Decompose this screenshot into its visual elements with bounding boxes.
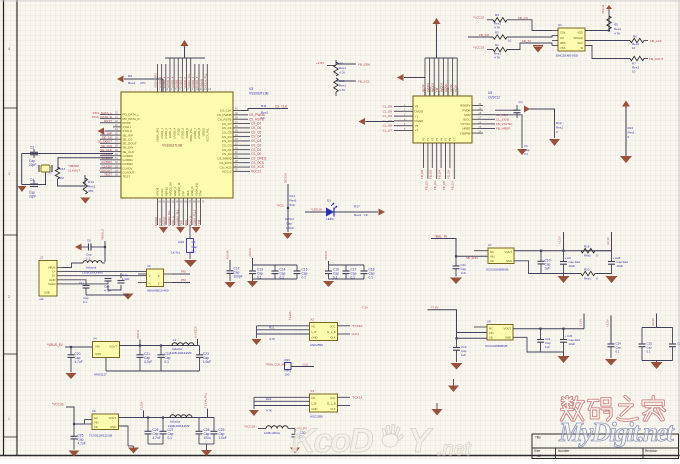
svg-text:47K: 47K [88,189,94,193]
svg-text:SCK: SCK [577,41,583,45]
svg-text:10uF: 10uF [569,264,576,268]
svg-text:R14: R14 [88,180,94,184]
svg-text:GND: GND [95,352,101,356]
svg-text:UVDD_4: UVDD_4 [172,127,176,138]
svg-text:0.1: 0.1 [257,276,262,280]
svg-text:*VCC33: *VCC33 [473,16,484,20]
svg-text:R18: R18 [178,240,184,244]
svg-text:DGND: DGND [415,119,425,123]
svg-text:Y1: Y1 [415,114,419,118]
svg-text:120B,100UH/MZ: 120B,100UH/MZ [168,424,190,428]
svg-text:R12: R12 [556,121,562,125]
svg-text:GND: GND [506,259,512,263]
svg-text:CL_D8: CL_D8 [383,105,393,109]
svg-text:R20: R20 [584,268,590,272]
svg-text:ASC2556: ASC2556 [310,415,323,419]
svg-text:ENC28J60-I/SS: ENC28J60-I/SS [556,54,578,58]
svg-text:SB_223V: SB_223V [466,256,478,260]
svg-text:HREF: HREF [462,127,470,131]
svg-text:VDDIO: VDDIO [201,128,205,137]
svg-text:Number: Number [558,449,570,453]
svg-text:VCC3I: VCC3I [136,330,140,339]
svg-text:2.2: 2.2 [86,257,91,261]
svg-text:VIN: VIN [489,331,494,335]
svg-text:CVDD_2: CVDD_2 [164,127,168,138]
svg-text:LED0: LED0 [326,217,334,221]
svg-text:*VCC33: *VCC33 [473,46,484,50]
svg-text:1.0uF: 1.0uF [203,360,211,364]
svg-text:C11: C11 [79,281,84,285]
svg-text:A3.3V: A3.3V [606,237,610,245]
svg-text:YSYNC: YSYNC [460,122,471,126]
svg-text:(C): (C) [519,100,523,104]
svg-text:Y8: Y8 [415,105,419,109]
svg-text:TL33A: TL33A [140,401,144,410]
svg-text:Res1: Res1 [354,213,362,217]
svg-text:DVDD: DVDD [415,110,424,114]
svg-text:OV9712: OV9712 [488,96,500,100]
svg-text:1uF: 1uF [461,271,466,275]
svg-text:10: 10 [632,70,636,74]
svg-text:WPb: WPb [560,41,566,45]
svg-text:NC: NC [312,396,316,400]
svg-text:GND: GND [312,336,318,340]
svg-text:0.1: 0.1 [192,250,197,254]
svg-text:+1.2V: +1.2V [606,319,610,327]
svg-text:Y6: Y6 [448,137,452,141]
svg-text:0.1: 0.1 [83,300,87,304]
svg-text:*TCX3A: *TCX3A [352,324,363,328]
svg-text:CLK: CLK [330,336,335,340]
svg-text:L_B: L_B [312,402,317,406]
svg-text:CLKOUT: CLKOUT [68,169,80,173]
svg-text:UVDD_1: UVDD_1 [160,127,164,138]
svg-text:CL_SIOD: CL_SIOD [496,117,510,121]
svg-text:U5: U5 [488,91,492,95]
svg-text:SI: SI [580,46,583,50]
svg-text:4.7K: 4.7K [614,32,620,36]
svg-text:TPM: TPM [199,190,203,196]
svg-text:-7.2V: -7.2V [361,306,368,310]
svg-text:VCC12: VCC12 [251,170,262,174]
svg-text:R8: R8 [339,62,343,66]
svg-text:GND_A: GND_A [173,187,177,196]
svg-text:4.7uF: 4.7uF [78,442,86,446]
svg-text:VCC12: VCC12 [222,170,232,174]
svg-text:Res1: Res1 [339,84,346,88]
svg-text:FB_DOUT: FB_DOUT [649,57,664,61]
svg-text:U6: U6 [92,409,96,413]
svg-text:D1: D1 [327,199,331,203]
svg-text:NC: NC [489,327,493,331]
svg-text:4.7uF: 4.7uF [75,360,83,364]
svg-text:4.7K: 4.7K [494,26,500,30]
svg-text:CLK1: CLK1 [352,332,360,336]
svg-text:0.1: 0.1 [333,276,338,280]
svg-text:D_L_B: D_L_B [327,330,335,334]
svg-text:VBUS_5: VBUS_5 [101,229,105,240]
svg-text:FB_D0: FB_D0 [420,170,424,179]
svg-text:4.7K: 4.7K [339,88,345,92]
svg-text:FB_SO: FB_SO [479,33,490,37]
svg-text:usb: usb [39,297,44,301]
svg-text:WOLDb: WOLDb [573,36,583,40]
svg-text:CL_D7: CL_D7 [383,129,393,133]
svg-text:FB_D4: FB_D4 [438,170,442,179]
svg-text:VCC3I: VCC3I [248,248,252,257]
svg-text:UVDD_7: UVDD_7 [193,127,197,138]
svg-text:0.1: 0.1 [524,152,529,156]
svg-text:1uF: 1uF [545,267,551,271]
svg-text:GND: GND [110,425,116,429]
svg-text:VS1063TL9B: VS1063TL9B [162,144,183,148]
svg-text:1uF: 1uF [461,353,466,357]
svg-text:CVDD_8: CVDD_8 [197,127,201,138]
svg-text:SIOC: SIOC [463,118,471,122]
svg-text:XVDD: XVDD [176,128,180,136]
svg-text:VIN: VIN [490,255,495,259]
svg-text:10: 10 [508,39,512,43]
svg-text:Y7: Y7 [453,137,457,141]
svg-text:VS1063TL9B: VS1063TL9B [249,92,269,96]
svg-text:AVDD_3: AVDD_3 [168,128,172,139]
svg-text:3: 3 [8,172,10,176]
svg-text:Y5: Y5 [415,124,419,128]
svg-text:RSTT: RSTT [104,119,112,123]
svg-text:R14: R14 [290,194,296,198]
svg-text:ADUM5012-400: ADUM5012-400 [147,289,169,293]
svg-text:NC: NC [94,416,98,420]
svg-text:Y0: Y0 [422,137,426,141]
svg-text:NC: NC [490,250,494,254]
svg-text:FB_CLK: FB_CLK [650,39,663,43]
svg-text:51K: 51K [290,203,295,207]
svg-text:TPM: TPM [197,219,201,226]
svg-text:ACLK: ACLK [455,88,459,95]
svg-text:*VBUS_5V: *VBUS_5V [47,343,63,347]
svg-text:4.7uF: 4.7uF [153,436,161,440]
svg-text:TEST: TEST [123,175,131,179]
svg-text:*BUL_IN: *BUL_IN [435,234,448,238]
svg-text:VCCA_PLL: VCCA_PLL [206,128,210,142]
svg-text:FB_SCL: FB_SCL [358,79,370,83]
svg-text:10: 10 [632,46,636,50]
svg-text:L_B: L_B [312,330,317,334]
svg-text:FB_D5: FB_D5 [442,181,446,190]
svg-text:SO: SO [560,36,564,40]
svg-text:120B,100UH: 120B,100UH [264,431,280,435]
svg-text:AVDD_6: AVDD_6 [185,128,189,139]
svg-text:VCC: VCC [330,396,336,400]
svg-text:VOUT: VOUT [504,327,512,331]
svg-text:4.7K: 4.7K [269,337,275,341]
svg-text:4.7K: 4.7K [494,56,500,60]
svg-text:+1.9V: +1.9V [579,319,583,327]
svg-text:R21: R21 [269,326,275,330]
svg-text:0.1: 0.1 [351,276,356,280]
svg-text:1M: 1M [60,176,65,180]
svg-text:CL_D5: CL_D5 [383,124,393,128]
svg-text:Y: Y [408,422,434,459]
svg-text:GND: GND [505,336,511,340]
svg-text:120B,100UH/MZ: 120B,100UH/MZ [170,351,192,355]
svg-text:FB_D1: FB_D1 [424,181,428,190]
svg-text:SHLD: SHLD [48,282,55,286]
svg-text:1.0uF: 1.0uF [286,226,294,230]
svg-text:1K %1: 1K %1 [171,251,180,255]
svg-text:FB_VSYNC: FB_VSYNC [496,122,513,126]
svg-text:*7.2V: *7.2V [431,306,440,310]
svg-text:PM: PM [181,278,186,282]
svg-text:Revision: Revision [645,449,657,453]
svg-text:GND: GND [312,407,318,411]
svg-text:D_L_B: D_L_B [327,402,335,406]
svg-text:FB_SDA: FB_SDA [358,62,371,66]
svg-text:U4: U4 [93,337,97,341]
svg-text:MyDigit.net: MyDigit.net [558,417,675,447]
svg-text:FB_D2: FB_D2 [429,170,433,179]
svg-text:Res1: Res1 [614,27,621,31]
svg-text:+1.5V: +1.5V [558,236,562,244]
svg-text:*PDA_CLK_PD: *PDA_CLK_PD [266,363,288,367]
svg-text:C6: C6 [87,239,91,243]
svg-text:FB_HREF: FB_HREF [496,127,510,131]
svg-text:Res1: Res1 [628,131,635,135]
svg-text:Y4: Y4 [439,137,443,141]
svg-text:U7: U7 [488,243,492,247]
svg-text:TL33A_PLL: TL33A_PLL [204,392,208,408]
svg-text:R2: R2 [495,31,499,35]
svg-text:*VCC33: *VCC33 [52,403,64,407]
svg-text:Y5: Y5 [444,137,448,141]
svg-text:CVDD_5: CVDD_5 [181,127,185,138]
svg-text:VOUT: VOUT [109,416,117,420]
svg-text:0.1: 0.1 [168,436,173,440]
svg-text:FB_CS: FB_CS [518,16,528,20]
svg-text:4: 4 [8,47,10,51]
svg-text:100u: 100u [204,436,211,440]
svg-text:47K: 47K [140,81,146,85]
svg-text:Title: Title [535,436,541,440]
svg-text:R11: R11 [261,104,267,108]
svg-text:CS_CLK: CS_CLK [275,105,288,109]
svg-text:R6: R6 [633,35,637,39]
svg-text:100: 100 [285,373,290,377]
svg-text:VOUT: VOUT [109,345,117,349]
svg-text:10uF: 10uF [569,342,576,346]
svg-text:SCX2016B05UB: SCX2016B05UB [485,344,507,348]
svg-text:PM: PM [181,270,186,274]
svg-text:P8/P82: P8/P82 [164,187,168,196]
svg-text:VDDA_PLL: VDDA_PLL [189,128,193,142]
svg-text:Res1: Res1 [584,254,591,258]
svg-text:FB_D3: FB_D3 [433,181,437,190]
svg-text:VIN: VIN [95,345,100,349]
svg-text:J1: J1 [40,256,43,260]
svg-text:WXC2: WXC2 [285,217,294,221]
svg-text:4.7K: 4.7K [266,408,272,412]
svg-text:*VCC33: *VCC33 [244,424,255,428]
svg-text:120B,100UH/MT: 120B,100UH/MT [82,270,104,274]
svg-text:0.1: 0.1 [616,350,620,354]
svg-text:R3: R3 [495,13,499,17]
svg-text:2: 2 [8,295,10,299]
svg-text:U2: U2 [147,264,151,268]
svg-text:CSb: CSb [560,31,566,35]
svg-text:FB_D6: FB_D6 [446,170,450,179]
svg-text:CE: CE [490,259,494,263]
svg-text:SOD: SOD [464,113,471,117]
svg-text:PVDK: PVDK [462,108,470,112]
svg-text:X2: X2 [311,318,315,322]
svg-text:.net: .net [437,439,471,459]
svg-text:1.0uF: 1.0uF [219,436,227,440]
svg-text:R1: R1 [495,43,499,47]
svg-text:CL_D9: CL_D9 [383,109,393,113]
svg-text:UVCC: UVCC [160,188,164,196]
svg-text:U3: U3 [249,87,253,91]
svg-text:Y3: Y3 [435,137,439,141]
svg-text:*48MHZ: *48MHZ [68,164,79,168]
svg-text:XVDDA_PL: XVDDA_PL [177,181,181,196]
svg-text:Res1: Res1 [290,199,297,203]
svg-text:22pF: 22pF [29,163,36,167]
svg-text:Res1: Res1 [584,277,591,281]
svg-text:U8: U8 [487,320,491,324]
svg-text:0.1: 0.1 [647,350,651,354]
svg-text:VDD: VDD [577,31,583,35]
svg-text:AMS1117: AMS1117 [94,373,107,377]
svg-text:VSS: VSS [560,46,566,50]
svg-text:10uF: 10uF [617,264,624,268]
svg-text:GND_D: GND_D [190,187,194,196]
svg-text:R24: R24 [628,126,634,130]
svg-text:1.1pF: 1.1pF [122,277,130,281]
svg-text:1uF: 1uF [545,345,550,349]
svg-text:CL_D3: CL_D3 [383,119,393,123]
svg-text:GPIO8: GPIO8 [156,187,160,196]
svg-text:KcoD: KcoD [291,422,373,459]
svg-text:TCX021W122UB: TCX021W122UB [89,434,112,438]
svg-text:AVDD3_DA: AVDD3_DA [169,182,173,196]
svg-text:FB_D7: FB_D7 [451,181,455,190]
svg-text:CE: CE [489,336,493,340]
svg-text:SCX2016B05UB: SCX2016B05UB [486,268,508,272]
svg-text:VDDA_PLL: VDDA_PLL [194,182,198,196]
svg-text:RES: RES [186,190,190,196]
svg-text:A-VCC3I: A-VCC3I [194,326,198,338]
svg-text:Cap: Cap [286,222,292,226]
svg-text:Size: Size [534,449,540,453]
svg-text:VOUT: VOUT [505,250,513,254]
svg-text:VCC3I: VCC3I [324,251,328,260]
svg-text:VCC: VCC [330,325,336,329]
svg-text:YSERW: YSERW [460,131,471,135]
svg-text:0.1: 0.1 [280,276,285,280]
svg-text:Cap: Cap [192,245,198,249]
svg-text:XT: XT [49,171,53,175]
svg-text:VCC31: VCC31 [601,4,605,14]
svg-text:TEST: TEST [104,173,112,177]
svg-text:U1: U1 [558,23,562,27]
svg-text:CE: CE [94,425,98,429]
svg-text:+2.8V: +2.8V [316,61,325,65]
svg-text:4.7K: 4.7K [339,71,345,75]
svg-text:RSERV: RSERV [460,104,470,108]
svg-text:TPP: TPP [182,191,186,196]
svg-text:R9: R9 [128,74,132,78]
svg-text:TL33A: TL33A [288,311,292,320]
svg-text:1: 1 [8,417,10,421]
svg-text:R19: R19 [584,245,590,249]
svg-text:*TCX3A: *TCX3A [352,396,363,400]
svg-text:NC: NC [312,325,316,329]
svg-text:CLK: CLK [303,362,309,366]
svg-text:C9: C9 [192,240,196,244]
svg-text:0.1: 0.1 [302,276,307,280]
svg-text:VDDA_3R3: VDDA_3R3 [156,128,160,142]
svg-text:VIN: VIN [94,421,99,425]
svg-text:L2: L2 [173,338,177,342]
svg-text:0.1: 0.1 [165,360,170,364]
svg-text:*LED1S: *LED1S [311,208,322,212]
svg-text:R22: R22 [266,397,272,401]
svg-text:Res1: Res1 [88,185,96,189]
svg-text:ASC2556: ASC2556 [310,343,323,347]
svg-text:0.1: 0.1 [369,276,374,280]
svg-text:Res1: Res1 [128,81,136,85]
svg-text:Res1: Res1 [339,66,346,70]
svg-text:A3.3V: A3.3V [651,318,655,326]
svg-text:FB_SI: FB_SI [522,39,531,43]
svg-text:100pF: 100pF [234,275,243,279]
svg-text:22pF: 22pF [29,195,36,199]
svg-text:CL_D2: CL_D2 [383,114,393,118]
svg-text:4.7uF: 4.7uF [144,360,152,364]
svg-text:Y7: Y7 [415,129,419,133]
svg-text:Inductor: Inductor [170,420,180,424]
svg-text:R13: R13 [60,167,66,171]
svg-text:Y1: Y1 [426,137,430,141]
svg-text:R17: R17 [354,205,360,209]
svg-text:X3: X3 [311,389,315,393]
svg-text:R23: R23 [285,358,291,362]
svg-text:SCX3A: SCX3A [284,173,288,183]
svg-text:CLK: CLK [330,407,335,411]
svg-text:AVX3A: AVX3A [226,250,230,259]
svg-text:Y2: Y2 [431,137,435,141]
svg-text:USB: USB [44,291,50,295]
svg-text:VCCA_PLL: VCCA_PLL [204,73,208,88]
svg-text:Res1: Res1 [556,126,563,130]
svg-text:A2: A2 [537,454,541,458]
svg-text:Inductor: Inductor [86,266,96,270]
svg-text:*VCC: *VCC [276,204,284,208]
svg-text:R5: R5 [614,23,618,27]
